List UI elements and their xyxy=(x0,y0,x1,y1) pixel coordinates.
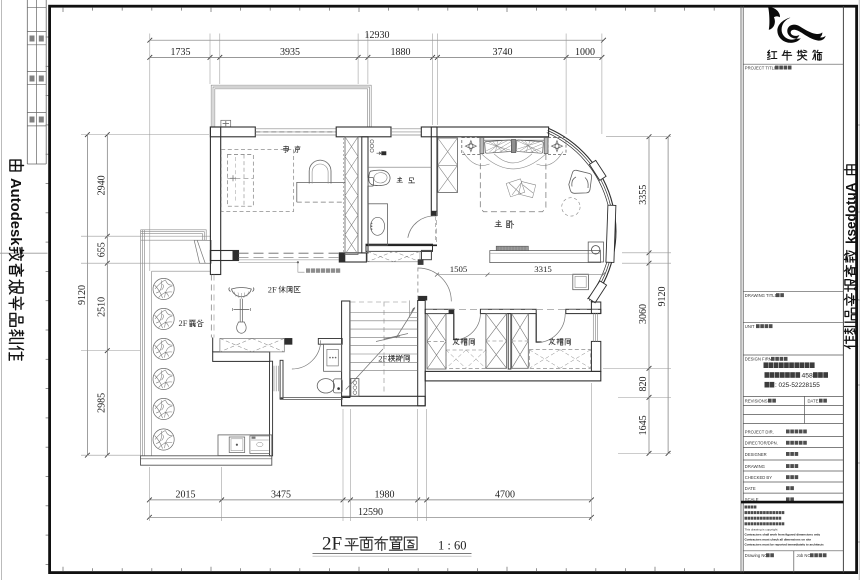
svg-text:2510: 2510 xyxy=(97,297,108,317)
svg-text:PROJECT DIR.: PROJECT DIR. xyxy=(745,429,774,434)
svg-text:1880: 1880 xyxy=(391,47,411,58)
svg-text:Contractors must check all dim: Contractors must check all dimensions on… xyxy=(745,538,812,542)
svg-text:9120: 9120 xyxy=(77,285,88,305)
svg-text:2F: 2F xyxy=(179,319,188,328)
svg-text:: 025-52228155: : 025-52228155 xyxy=(775,382,820,389)
svg-text:DATE: DATE xyxy=(808,398,819,403)
svg-text:1505: 1505 xyxy=(450,264,468,274)
svg-text:ksedotuA: ksedotuA xyxy=(844,182,859,244)
svg-text:9120: 9120 xyxy=(657,287,668,307)
svg-text:1645: 1645 xyxy=(638,415,649,435)
svg-text:DESIGNER: DESIGNER xyxy=(745,452,767,457)
svg-text:3935: 3935 xyxy=(280,47,300,58)
svg-text:UNIT: UNIT xyxy=(745,324,755,329)
svg-text:1000: 1000 xyxy=(575,47,595,58)
svg-text:3315: 3315 xyxy=(534,264,552,274)
svg-text:3355: 3355 xyxy=(638,185,649,205)
svg-text:2940: 2940 xyxy=(97,175,108,195)
svg-text:2985: 2985 xyxy=(97,393,108,413)
svg-text:655: 655 xyxy=(97,242,108,257)
svg-text:2015: 2015 xyxy=(176,489,196,500)
svg-text:Drawing NO.: Drawing NO. xyxy=(745,553,769,558)
svg-text:458: 458 xyxy=(802,373,814,380)
svg-text:This drawing is copyright: This drawing is copyright xyxy=(745,528,778,532)
svg-text:Job NO.: Job NO. xyxy=(797,553,812,558)
svg-text:CHECKED BY: CHECKED BY xyxy=(745,475,772,480)
svg-text:2F: 2F xyxy=(268,286,277,295)
svg-text:4700: 4700 xyxy=(495,489,515,500)
svg-text:Contractors must be reported i: Contractors must be reported immediately… xyxy=(745,543,825,547)
svg-text:DATE: DATE xyxy=(745,486,756,491)
svg-text:3740: 3740 xyxy=(493,47,513,58)
svg-text:DRAWING TITLE: DRAWING TITLE xyxy=(745,293,778,298)
svg-text:REVISIONS: REVISIONS xyxy=(745,398,768,403)
svg-text:2F: 2F xyxy=(322,534,342,555)
svg-text:12590: 12590 xyxy=(358,507,383,518)
svg-text:3060: 3060 xyxy=(638,304,649,324)
svg-text:820: 820 xyxy=(638,377,649,392)
svg-text:2F: 2F xyxy=(378,355,387,364)
svg-text:1 : 60: 1 : 60 xyxy=(438,538,466,552)
svg-text:12930: 12930 xyxy=(365,30,390,41)
svg-text:PROJECT TITLE: PROJECT TITLE xyxy=(745,65,777,70)
svg-text:1735: 1735 xyxy=(171,47,191,58)
svg-text:DRAWING: DRAWING xyxy=(745,464,765,469)
svg-text:Autodesk: Autodesk xyxy=(7,178,23,246)
svg-text:DIRECTOR/DPN.: DIRECTOR/DPN. xyxy=(745,441,778,446)
svg-text:Contractors shall work from fi: Contractors shall work from figured dime… xyxy=(745,533,821,537)
svg-text:3475: 3475 xyxy=(271,489,291,500)
svg-text:DESIGN FIRM: DESIGN FIRM xyxy=(745,357,773,362)
svg-text:1980: 1980 xyxy=(375,489,395,500)
